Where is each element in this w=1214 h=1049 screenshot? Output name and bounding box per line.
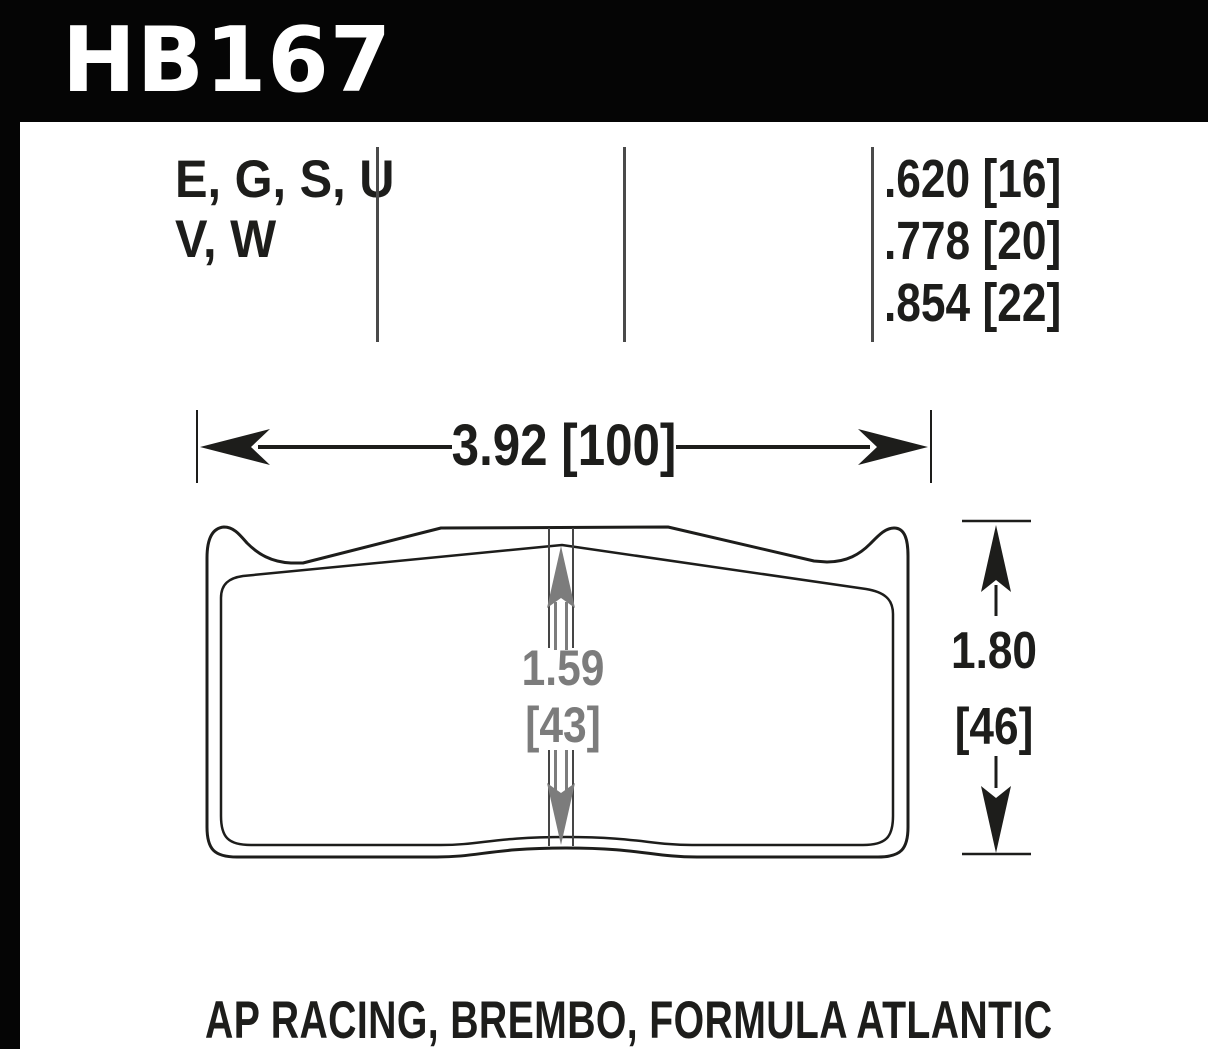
height-dimension: 1.80 [46] [951, 521, 1037, 854]
height-dimension-mm: [46] [955, 698, 1034, 756]
divider-tick-3 [871, 147, 874, 342]
applications-text: AP RACING, BREMBO, FORMULA ATLANTIC [205, 993, 1052, 1049]
left-black-bar [0, 0, 20, 1049]
thickness-item: .854 [22] [884, 272, 1061, 334]
divider-tick-2 [623, 147, 626, 342]
compound-codes-line2: V, W [175, 210, 394, 270]
pad-diagram-svg: 3.92 [100] 1.59 [43] 1.80 [185, 395, 1060, 870]
catalog-page: HB167 E, G, S, U V, W .620 [16] .778 [20… [0, 0, 1214, 1049]
part-number-banner: HB167 [0, 0, 1208, 122]
arrow-down-icon [547, 783, 575, 845]
arrow-down-icon [981, 786, 1011, 853]
part-number: HB167 [62, 16, 392, 106]
thickness-item: .620 [16] [884, 148, 1061, 210]
depth-dimension-mm: [43] [525, 697, 601, 753]
thickness-list: .620 [16] .778 [20] .854 [22] [884, 148, 1061, 334]
depth-dimension-value: 1.59 [522, 640, 605, 696]
height-dimension-value: 1.80 [951, 622, 1037, 680]
compound-codes: E, G, S, U V, W [175, 150, 394, 270]
arrow-up-icon [547, 546, 575, 608]
arrow-up-icon [981, 525, 1011, 592]
compound-codes-line1: E, G, S, U [175, 150, 394, 210]
width-dimension: 3.92 [100] [197, 410, 931, 483]
thickness-item: .778 [20] [884, 210, 1061, 272]
width-dimension-label: 3.92 [100] [452, 413, 677, 478]
divider-tick-1 [376, 147, 379, 342]
pad-depth-dimension: 1.59 [43] [522, 528, 605, 846]
